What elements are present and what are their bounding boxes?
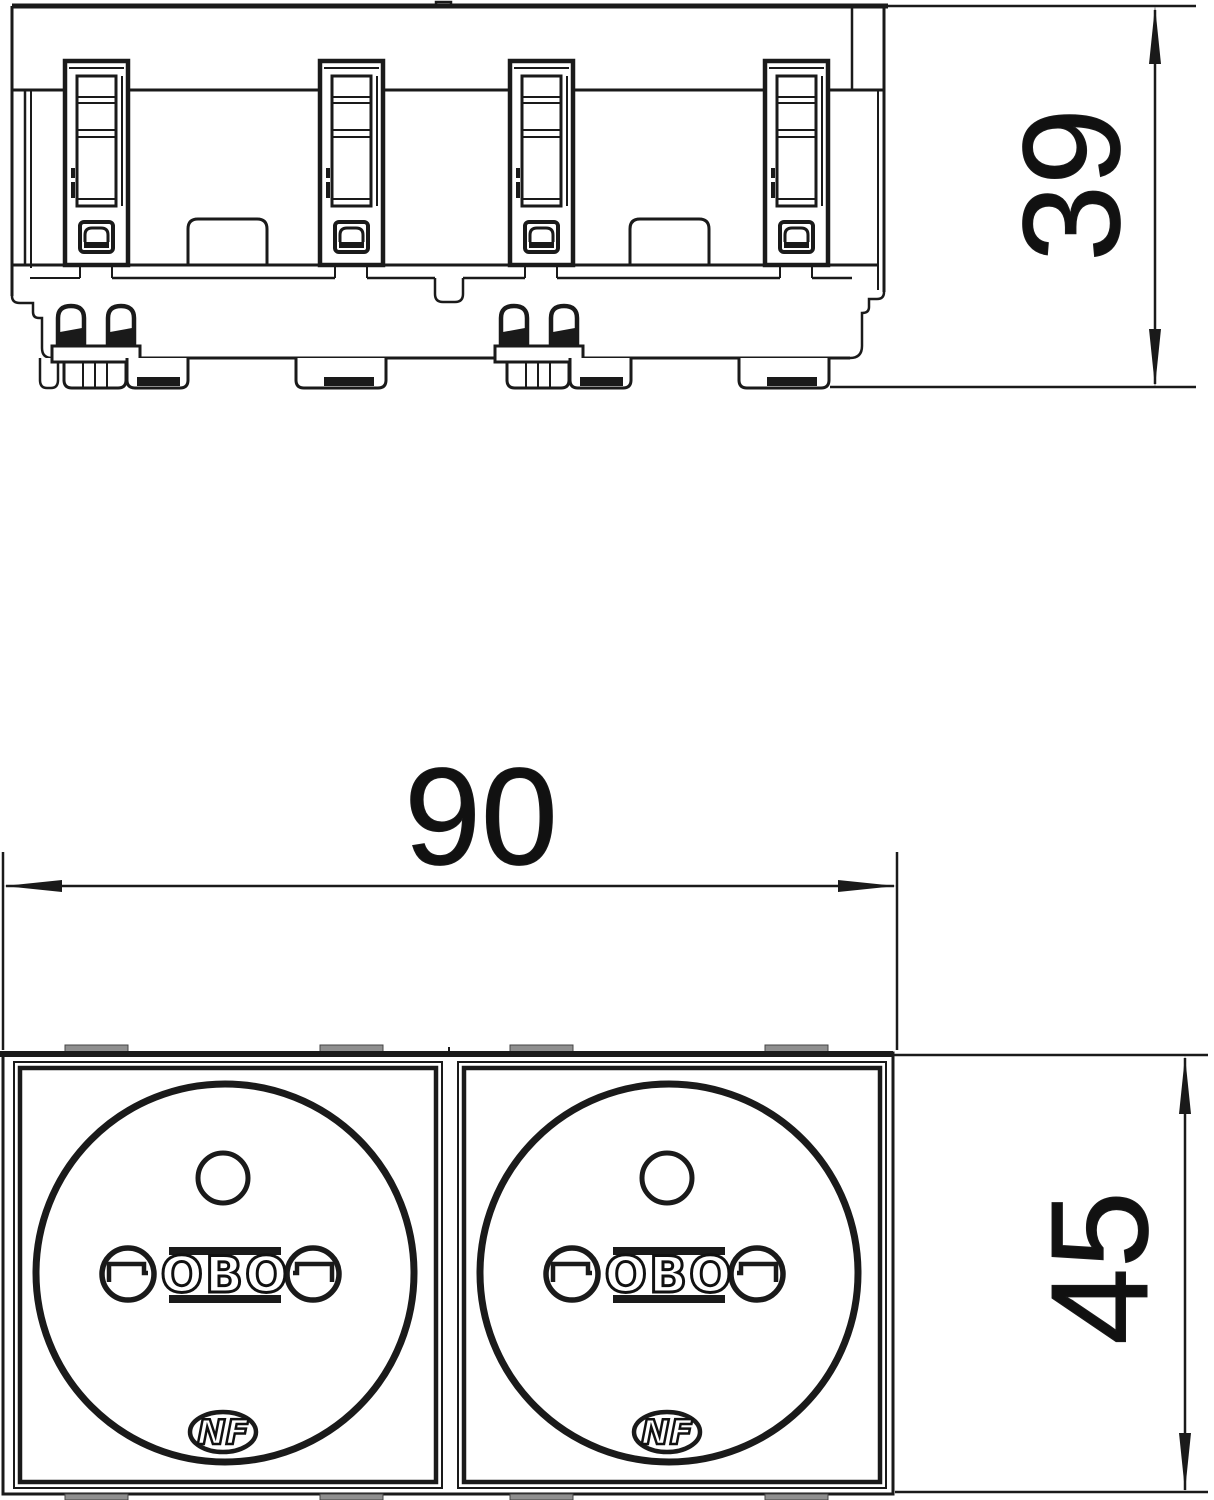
front-width-label: 90: [404, 740, 558, 894]
front-frame: [3, 1053, 893, 1494]
arrowhead-left: [4, 880, 62, 892]
nf-certification-badge: NF: [641, 1413, 693, 1453]
arrowhead-right: [838, 880, 896, 892]
arrowhead-down: [1179, 1433, 1191, 1491]
side-view: [12, 2, 888, 388]
guide-tab: [188, 219, 267, 265]
mounting-foot: [570, 358, 631, 388]
dimension-90: 90: [3, 740, 897, 1050]
fixing-clip: [65, 61, 128, 277]
center-latch-notch: [435, 278, 463, 302]
nf-certification-badge: NF: [197, 1413, 249, 1453]
obo-brand-logo: OBO: [604, 1246, 733, 1304]
arrowhead-up: [1149, 6, 1161, 64]
mounting-foot: [127, 358, 188, 388]
fixing-clip: [765, 61, 828, 277]
mounting-foot: [296, 358, 386, 388]
front-view: OBO OBO NF NF: [0, 1045, 893, 1500]
arrowhead-down: [1149, 329, 1161, 387]
dimension-45: 45: [893, 1055, 1208, 1492]
side-height-label: 39: [995, 108, 1149, 262]
arrowhead-up: [1179, 1056, 1191, 1114]
guide-tab: [630, 219, 709, 265]
dimension-drawing: 39 90 OBO OBO NF NF: [0, 0, 1214, 1500]
mounting-foot: [739, 358, 829, 388]
drawing-canvas: 39 90 OBO OBO NF NF: [0, 0, 1214, 1500]
fixing-clip: [510, 61, 573, 277]
fixing-clip: [320, 61, 383, 277]
front-height-label: 45: [1023, 1191, 1177, 1345]
obo-brand-logo: OBO: [160, 1246, 289, 1304]
